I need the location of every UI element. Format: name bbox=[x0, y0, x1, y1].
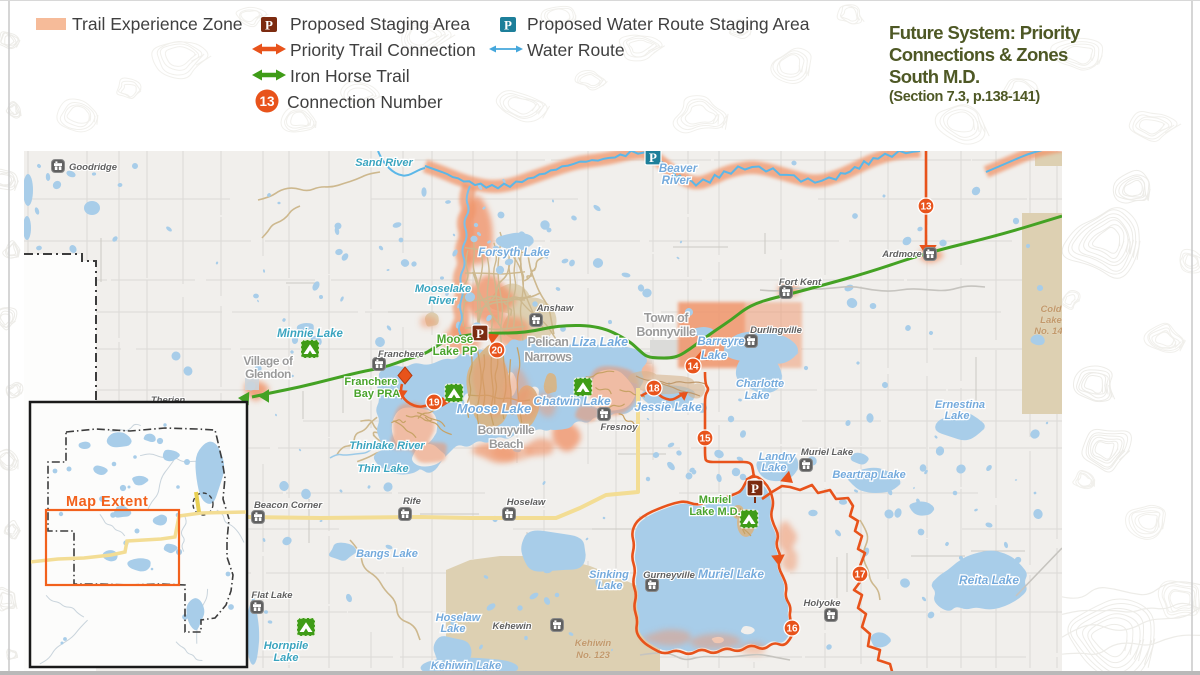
svg-text:Liza Lake: Liza Lake bbox=[572, 335, 628, 349]
svg-text:Proposed Water Route Staging A: Proposed Water Route Staging Area bbox=[527, 14, 810, 34]
svg-text:South M.D.: South M.D. bbox=[889, 66, 980, 87]
svg-text:16: 16 bbox=[786, 624, 798, 635]
svg-text:P: P bbox=[504, 18, 512, 33]
svg-text:P: P bbox=[265, 18, 273, 33]
svg-text:Beacon Corner: Beacon Corner bbox=[254, 500, 323, 511]
svg-text:Future System: Priority: Future System: Priority bbox=[889, 22, 1081, 43]
svg-text:14: 14 bbox=[687, 362, 699, 373]
svg-text:Charlotte: Charlotte bbox=[736, 378, 784, 390]
svg-text:Anshaw: Anshaw bbox=[536, 303, 574, 314]
svg-text:Lake: Lake bbox=[744, 390, 769, 402]
svg-text:Lake: Lake bbox=[1040, 315, 1062, 326]
svg-text:Lake: Lake bbox=[440, 623, 465, 635]
svg-text:Narrows: Narrows bbox=[524, 350, 572, 364]
svg-text:Moose: Moose bbox=[437, 334, 473, 346]
svg-text:Lake: Lake bbox=[701, 350, 728, 362]
svg-text:Cold: Cold bbox=[1040, 304, 1061, 315]
svg-text:Bonnyville: Bonnyville bbox=[636, 325, 696, 339]
svg-text:Connections & Zones: Connections & Zones bbox=[889, 44, 1068, 65]
svg-text:Connection Number: Connection Number bbox=[287, 92, 443, 112]
svg-text:Village of: Village of bbox=[243, 354, 294, 368]
svg-text:Ardmore: Ardmore bbox=[881, 249, 922, 260]
svg-text:Map Extent: Map Extent bbox=[66, 494, 148, 510]
svg-text:Kehiwin: Kehiwin bbox=[575, 638, 612, 649]
svg-text:18: 18 bbox=[648, 384, 660, 395]
svg-text:Kehiwin Lake: Kehiwin Lake bbox=[431, 660, 501, 672]
svg-text:Lake M.D.: Lake M.D. bbox=[689, 506, 740, 518]
svg-text:No. 123: No. 123 bbox=[576, 650, 611, 661]
svg-text:Barreyre: Barreyre bbox=[697, 336, 745, 348]
svg-text:Beach: Beach bbox=[489, 437, 523, 451]
svg-text:Thinlake River: Thinlake River bbox=[349, 440, 425, 452]
svg-text:Town of: Town of bbox=[644, 311, 689, 325]
svg-text:Muriel Lake: Muriel Lake bbox=[801, 447, 854, 458]
svg-text:Chatwin Lake: Chatwin Lake bbox=[533, 394, 611, 408]
svg-text:Lake: Lake bbox=[273, 652, 298, 664]
svg-text:Hornpile: Hornpile bbox=[264, 640, 309, 652]
svg-text:Franchere: Franchere bbox=[344, 376, 397, 388]
svg-text:Lake: Lake bbox=[944, 410, 969, 422]
svg-text:Proposed Staging Area: Proposed Staging Area bbox=[290, 14, 470, 34]
svg-text:River: River bbox=[428, 295, 456, 307]
svg-text:Lake: Lake bbox=[597, 580, 622, 592]
svg-text:Jessie Lake: Jessie Lake bbox=[634, 400, 702, 414]
svg-text:Glendon: Glendon bbox=[245, 367, 291, 381]
svg-text:Lake: Lake bbox=[761, 462, 786, 474]
svg-text:Kehewin: Kehewin bbox=[492, 621, 531, 632]
svg-text:Gurneyville: Gurneyville bbox=[643, 570, 695, 581]
svg-text:Lake PP: Lake PP bbox=[433, 346, 478, 358]
svg-text:Water Route: Water Route bbox=[527, 40, 625, 60]
svg-text:Iron Horse Trail: Iron Horse Trail bbox=[290, 66, 410, 86]
svg-text:Mooselake: Mooselake bbox=[415, 283, 471, 295]
svg-text:Trail Experience Zone: Trail Experience Zone bbox=[72, 14, 243, 34]
svg-text:Goodridge: Goodridge bbox=[69, 162, 118, 173]
svg-text:20: 20 bbox=[491, 346, 503, 357]
svg-text:17: 17 bbox=[854, 570, 866, 581]
svg-text:19: 19 bbox=[428, 398, 440, 409]
svg-text:15: 15 bbox=[699, 434, 711, 445]
svg-text:Durlingville: Durlingville bbox=[750, 325, 802, 336]
svg-text:Beartrap Lake: Beartrap Lake bbox=[832, 469, 905, 481]
svg-text:Fort Kent: Fort Kent bbox=[779, 277, 822, 288]
svg-text:Flat Lake: Flat Lake bbox=[251, 590, 293, 601]
svg-text:Minnie Lake: Minnie Lake bbox=[277, 328, 343, 340]
svg-text:Hoselaw: Hoselaw bbox=[507, 497, 546, 508]
svg-text:13: 13 bbox=[920, 202, 932, 213]
svg-text:Priority Trail Connection: Priority Trail Connection bbox=[290, 40, 476, 60]
svg-text:Bonnyville: Bonnyville bbox=[478, 423, 535, 437]
svg-text:Bangs Lake: Bangs Lake bbox=[356, 548, 418, 560]
svg-text:(Section 7.3, p.138-141): (Section 7.3, p.138-141) bbox=[889, 89, 1040, 105]
svg-text:13: 13 bbox=[259, 94, 275, 109]
svg-text:Forsyth Lake: Forsyth Lake bbox=[478, 247, 550, 259]
svg-text:Reita Lake: Reita Lake bbox=[959, 573, 1019, 587]
svg-text:Rife: Rife bbox=[403, 496, 422, 507]
svg-text:Fresnoy: Fresnoy bbox=[601, 422, 639, 433]
svg-text:Bay PRA: Bay PRA bbox=[354, 388, 401, 400]
svg-text:Muriel Lake: Muriel Lake bbox=[698, 567, 764, 581]
svg-text:Moose Lake: Moose Lake bbox=[457, 401, 531, 416]
svg-text:Holyoke: Holyoke bbox=[804, 598, 842, 609]
svg-text:Sand River: Sand River bbox=[355, 157, 413, 169]
svg-text:Thin Lake: Thin Lake bbox=[357, 463, 408, 475]
svg-text:Muriel: Muriel bbox=[699, 494, 731, 506]
svg-text:River: River bbox=[662, 175, 691, 187]
svg-text:Beaver: Beaver bbox=[659, 163, 698, 175]
svg-text:Pelican: Pelican bbox=[528, 335, 569, 349]
svg-text:Franchere: Franchere bbox=[378, 349, 425, 360]
